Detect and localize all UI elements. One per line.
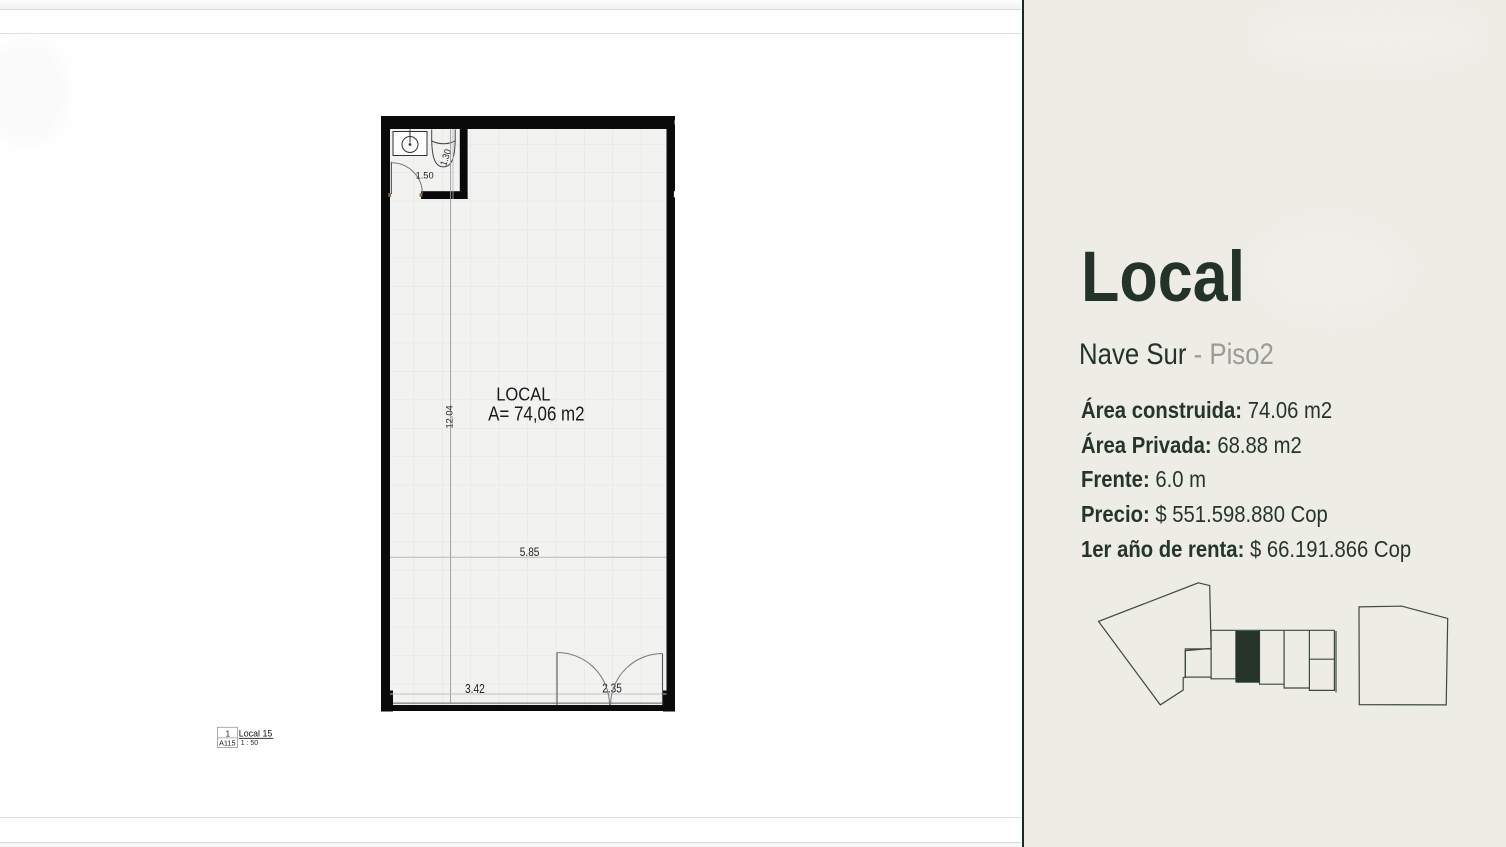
svg-text:5.85: 5.85 bbox=[520, 547, 540, 559]
svg-text:1 : 50: 1 : 50 bbox=[241, 740, 258, 747]
svg-text:A= 74,06 m2: A= 74,06 m2 bbox=[488, 402, 584, 425]
svg-text:3.42: 3.42 bbox=[465, 682, 485, 696]
svg-text:Local 15: Local 15 bbox=[239, 729, 272, 739]
svg-text:1.50: 1.50 bbox=[416, 171, 434, 181]
svg-text:12.04: 12.04 bbox=[445, 405, 455, 428]
svg-text:A115: A115 bbox=[219, 738, 236, 747]
svg-text:1: 1 bbox=[226, 728, 231, 738]
